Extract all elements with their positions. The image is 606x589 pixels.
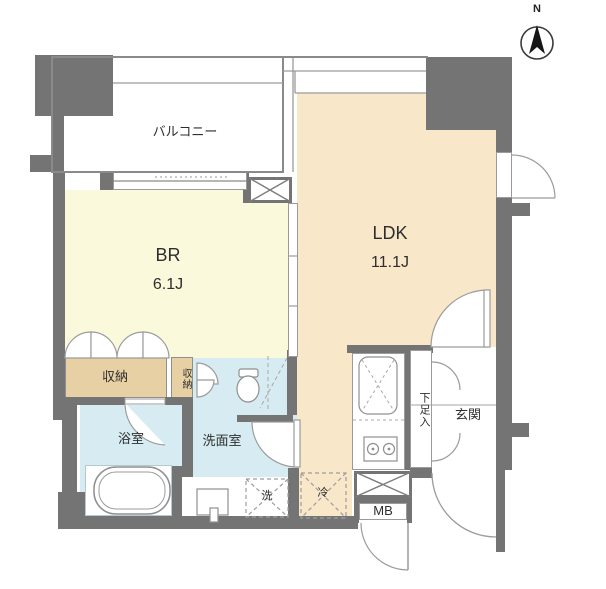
north-compass-icon [521,25,553,59]
mb-door-arc [361,523,408,570]
ldk-right-door-arc [512,155,555,198]
balcony-label: バルコニー [135,125,235,139]
plan-linework [0,0,606,589]
ldk-size-label: 11.1J [340,254,440,272]
bedroom-label: BR [118,246,218,266]
ldk-label: LDK [340,224,440,244]
washer-label: 洗 [258,490,276,502]
entrance-door-arc [432,473,496,537]
closet-small-doors [197,363,218,397]
meter-box-label: MB [359,504,407,518]
closet-main-label: 収納 [85,370,145,384]
kitchen-sink [359,357,397,414]
washroom-door-panel [294,420,300,467]
bedroom-size-label: 6.1J [118,276,218,294]
north-label: N [527,3,547,15]
toilet-screen-dashed [260,356,287,412]
washroom-sink [197,489,228,522]
kitchen-stove [364,437,397,461]
entrance-label: 玄関 [448,408,488,422]
balcony-outline [52,57,283,172]
ldk-entry-door-panel [484,290,490,347]
washroom-label: 洗面室 [192,434,252,448]
bathroom-door-panel [125,399,165,404]
floor-plan: バルコニー BR 6.1J LDK 11.1J 収納 収納 浴室 洗面室 下足入… [0,0,606,589]
bathtub [94,467,170,514]
ldk-entry-door-arc [431,290,488,347]
pipe-shaft-x-lower [355,472,411,497]
toilet [237,369,259,402]
closet-small-label: 収納 [173,360,191,398]
bathroom-label: 浴室 [104,432,158,446]
closet-bifold-doors [65,332,169,358]
pipe-shaft-x-upper [249,178,291,202]
washroom-door-arc [252,422,297,467]
shoe-cabinet-label: 下足入 [412,384,430,436]
fridge-label: 冷 [314,487,332,499]
